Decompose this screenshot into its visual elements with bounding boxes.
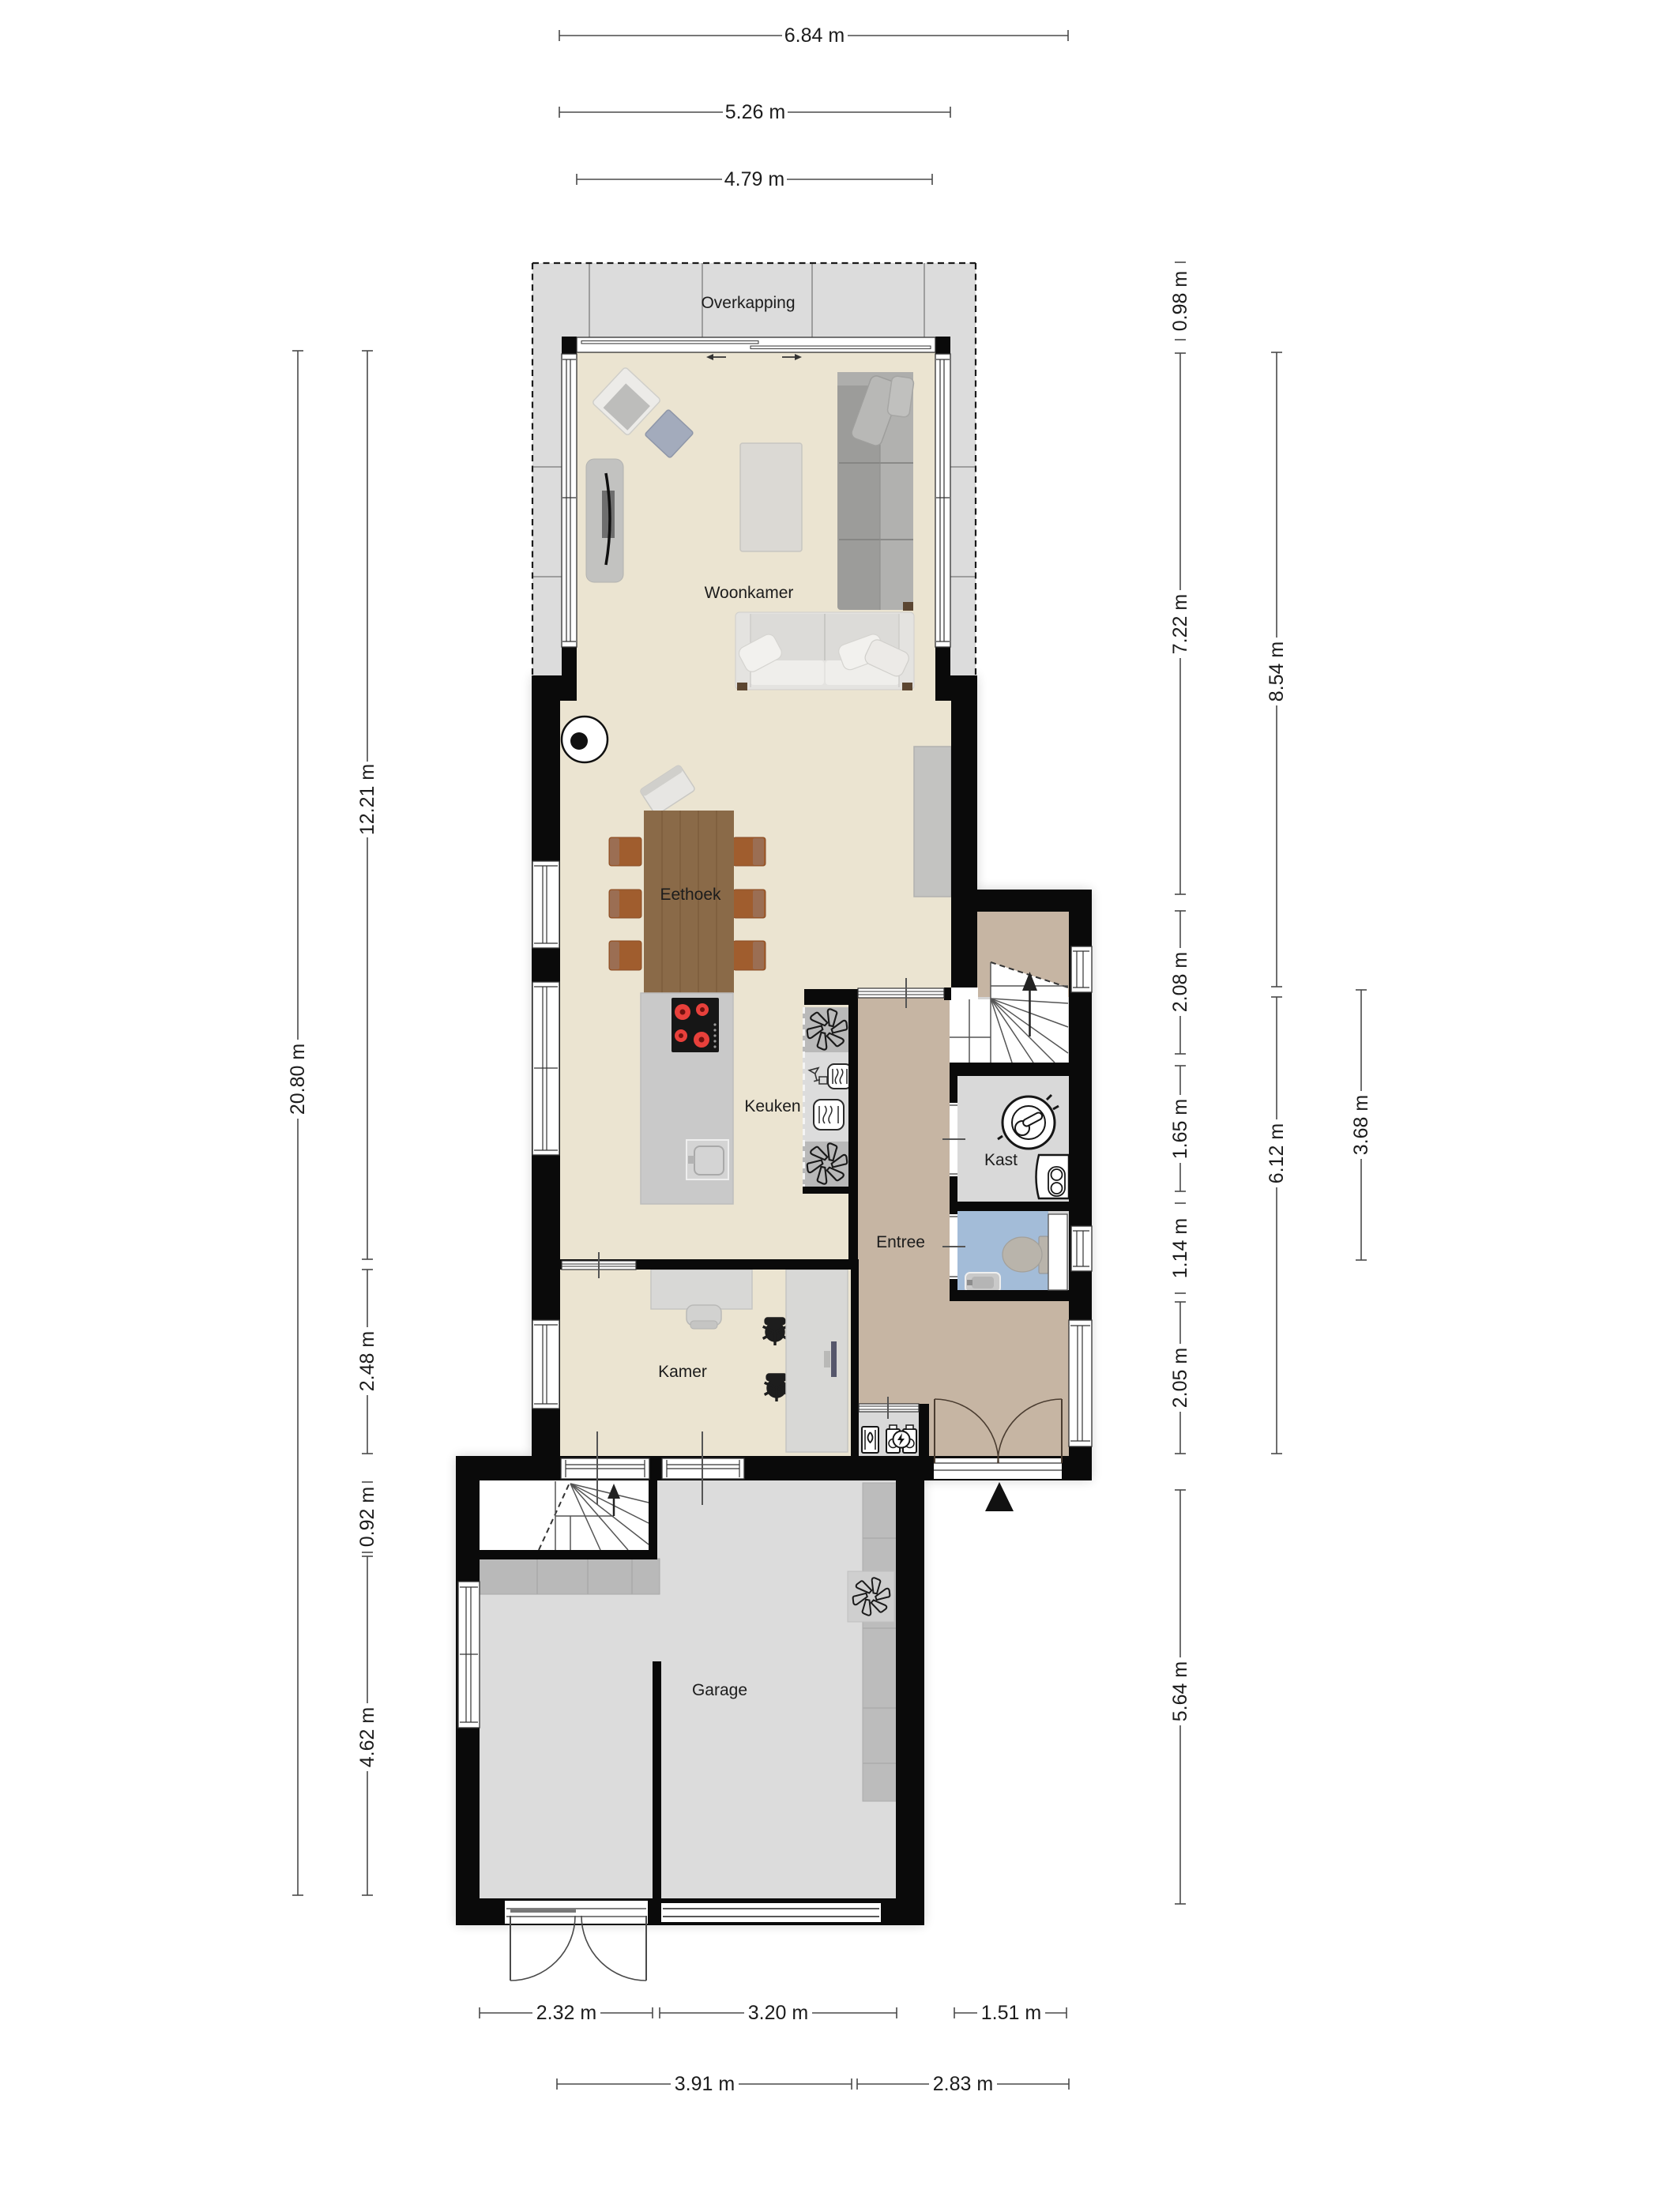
svg-text:Eethoek: Eethoek: [660, 886, 721, 904]
svg-text:20.80 m: 20.80 m: [287, 1044, 309, 1115]
svg-text:Overkapping: Overkapping: [701, 294, 795, 312]
svg-text:1.51 m: 1.51 m: [981, 2002, 1041, 2024]
svg-text:2.05 m: 2.05 m: [1169, 1348, 1191, 1408]
svg-text:8.54 m: 8.54 m: [1266, 641, 1288, 702]
svg-text:Garage: Garage: [692, 1681, 747, 1699]
svg-text:Keuken: Keuken: [744, 1097, 800, 1115]
svg-text:7.22 m: 7.22 m: [1169, 594, 1191, 654]
svg-text:5.26 m: 5.26 m: [725, 101, 785, 123]
svg-text:6.84 m: 6.84 m: [784, 24, 845, 47]
svg-text:Kast: Kast: [984, 1151, 1018, 1169]
svg-text:Kamer: Kamer: [658, 1363, 707, 1381]
svg-text:3.68 m: 3.68 m: [1350, 1095, 1372, 1155]
svg-text:Entree: Entree: [876, 1233, 925, 1251]
svg-text:0.92 m: 0.92 m: [356, 1487, 378, 1547]
svg-text:1.14 m: 1.14 m: [1169, 1218, 1191, 1278]
svg-text:6.12 m: 6.12 m: [1266, 1123, 1288, 1183]
svg-text:2.32 m: 2.32 m: [536, 2002, 596, 2024]
svg-text:3.20 m: 3.20 m: [748, 2002, 808, 2024]
svg-text:2.08 m: 2.08 m: [1169, 952, 1191, 1012]
svg-text:4.62 m: 4.62 m: [356, 1707, 378, 1767]
svg-text:2.48 m: 2.48 m: [356, 1331, 378, 1391]
svg-text:Woonkamer: Woonkamer: [705, 584, 794, 602]
svg-text:1.65 m: 1.65 m: [1169, 1099, 1191, 1159]
svg-text:5.64 m: 5.64 m: [1169, 1661, 1191, 1721]
svg-text:3.91 m: 3.91 m: [675, 2073, 735, 2095]
svg-text:4.79 m: 4.79 m: [724, 168, 784, 190]
svg-text:2.83 m: 2.83 m: [933, 2073, 993, 2095]
svg-text:0.98 m: 0.98 m: [1169, 271, 1191, 331]
svg-text:12.21 m: 12.21 m: [356, 764, 378, 835]
